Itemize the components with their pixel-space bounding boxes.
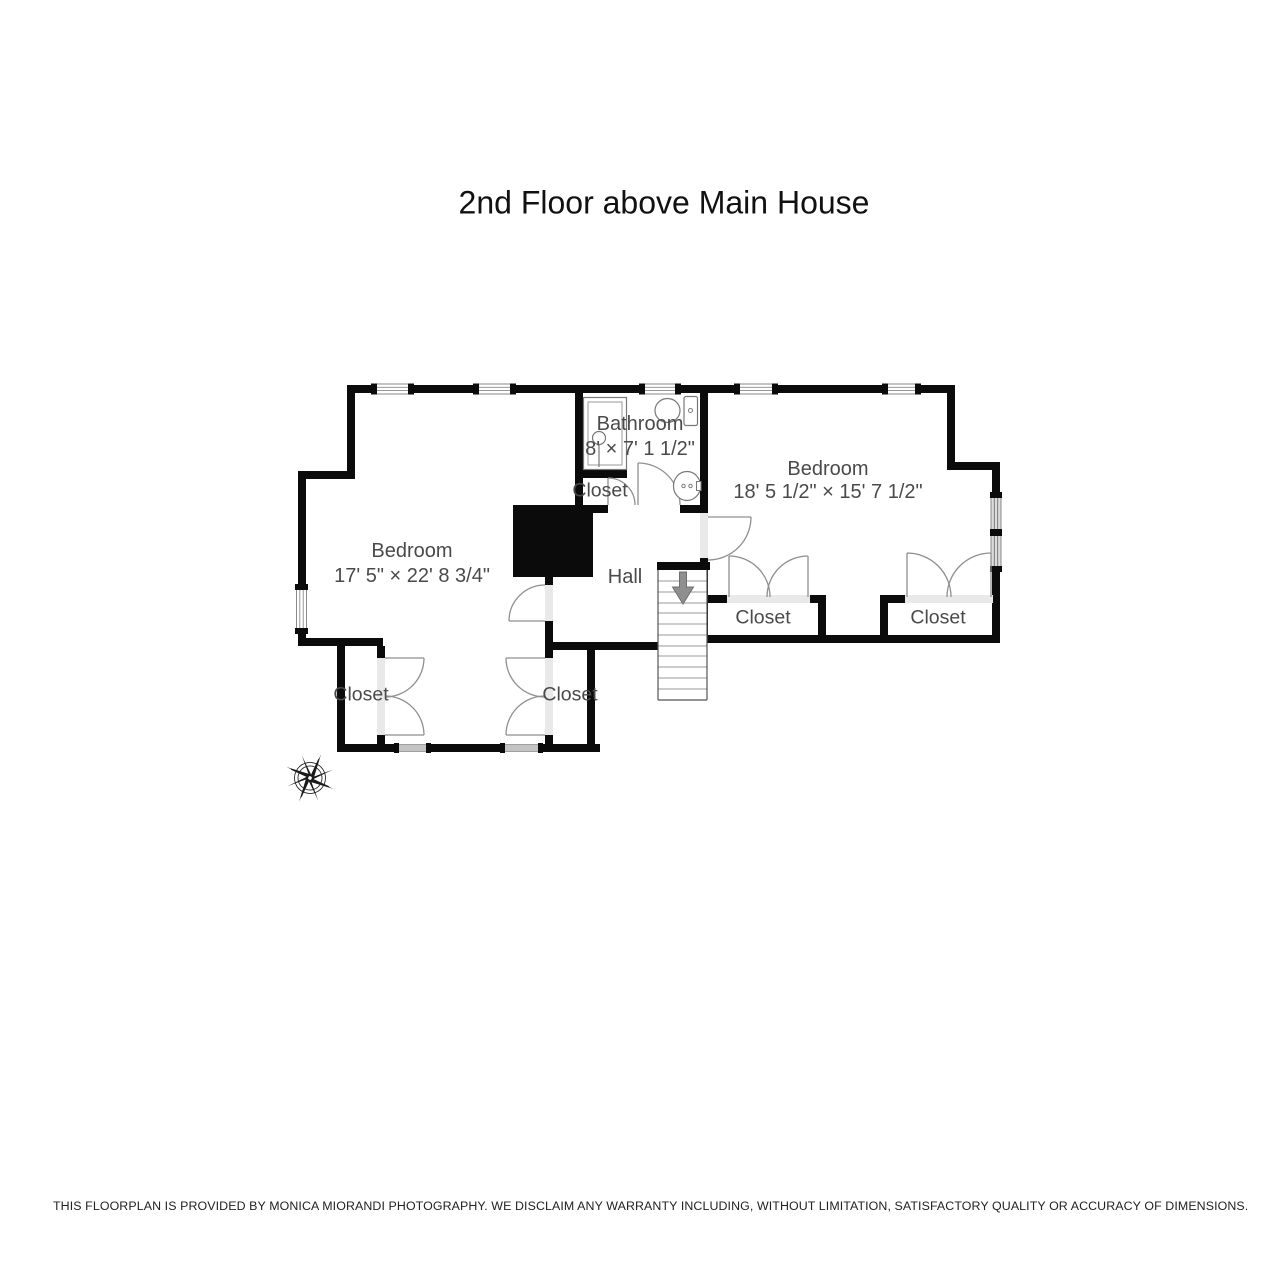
- left-closet-label: Closet: [333, 683, 388, 706]
- compass-rose-icon: [275, 743, 344, 812]
- bathroom-name: Bathroom: [597, 412, 684, 436]
- bathroom-dimensions: 8' × 7' 1 1/2": [585, 437, 695, 461]
- page-title: 2nd Floor above Main House: [459, 185, 870, 222]
- bathroom-closet-label: Closet: [572, 479, 627, 502]
- bedroom-right-name: Bedroom: [787, 457, 868, 481]
- sink-icon: [674, 472, 702, 501]
- middle-closet-label: Closet: [542, 683, 597, 706]
- bedroom-right-dimensions: 18' 5 1/2" × 15' 7 1/2": [733, 480, 922, 504]
- disclaimer-text: THIS FLOORPLAN IS PROVIDED BY MONICA MIO…: [53, 1199, 1248, 1213]
- floorplan-page: 2nd Floor above Main House Bedroom 17' 5…: [0, 0, 1280, 1280]
- bedroom-left-name: Bedroom: [371, 539, 452, 563]
- hall-label: Hall: [608, 565, 642, 589]
- right-bedroom-left-closet-label: Closet: [735, 606, 790, 629]
- chimney: [513, 505, 593, 577]
- right-bedroom-right-closet-label: Closet: [910, 606, 965, 629]
- stairs: [658, 570, 707, 700]
- bedroom-left-dimensions: 17' 5" × 22' 8 3/4": [334, 564, 490, 588]
